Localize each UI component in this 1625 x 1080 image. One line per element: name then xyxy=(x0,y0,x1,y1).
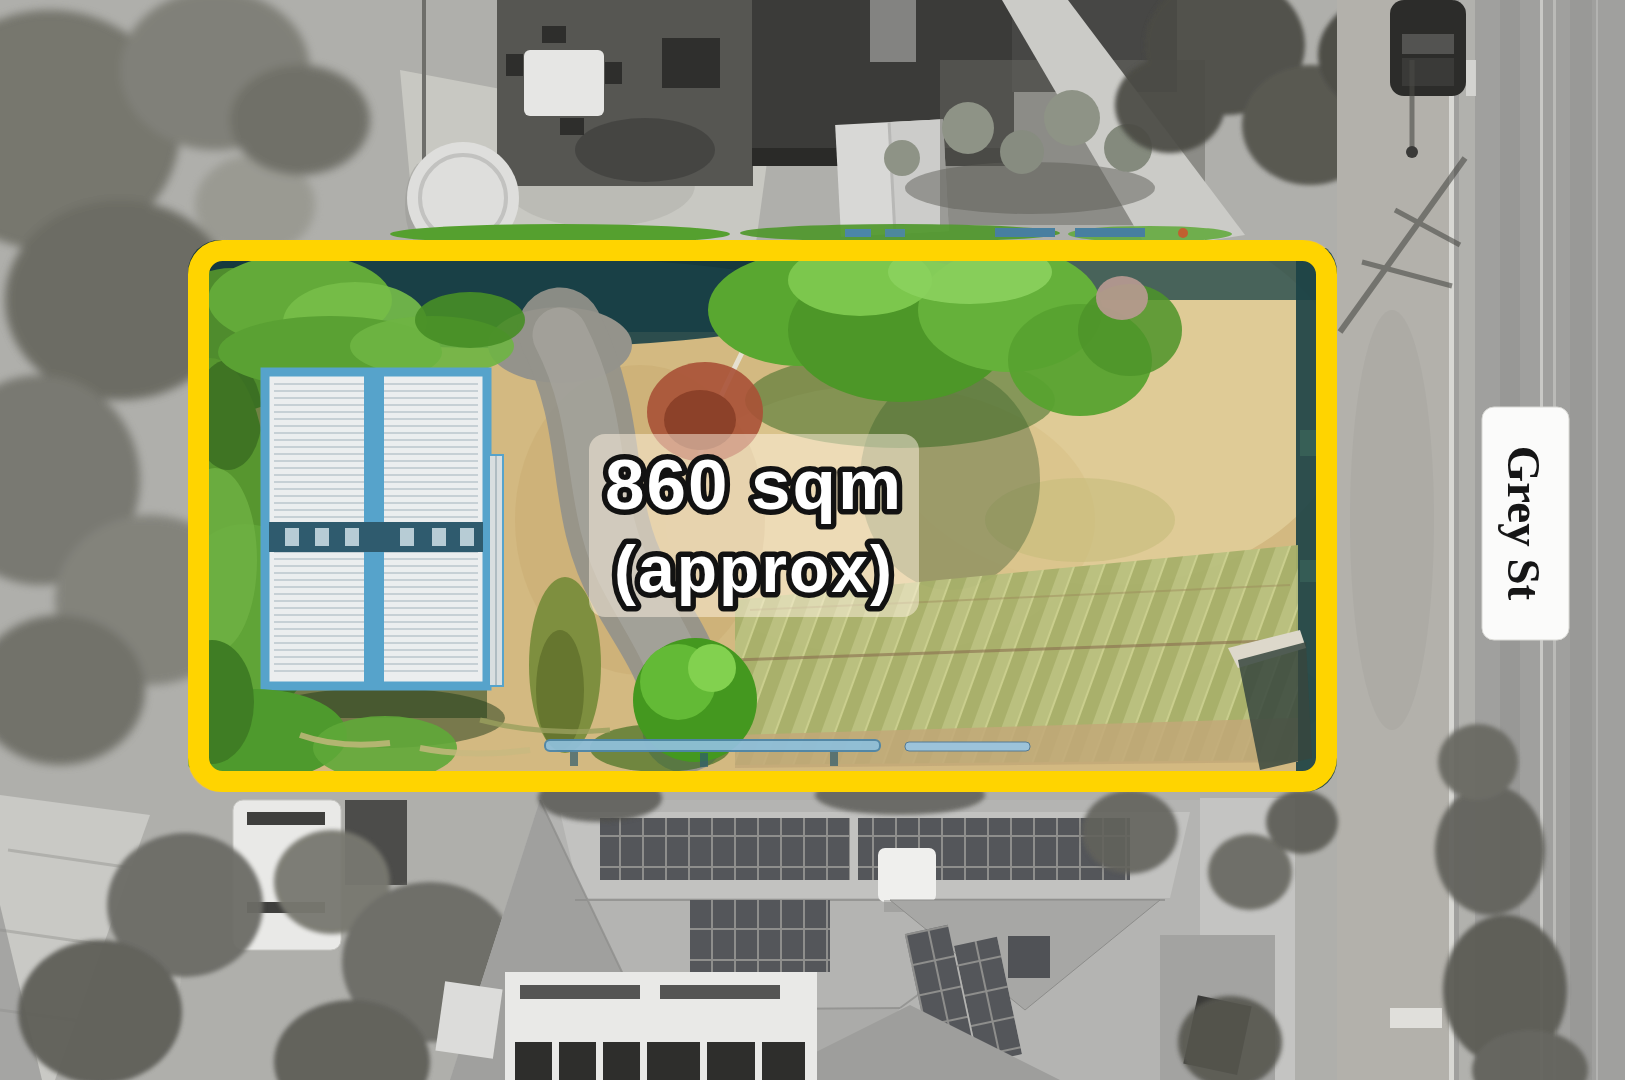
solar-array xyxy=(690,900,830,972)
bbq-top xyxy=(662,38,720,88)
sunroom xyxy=(505,972,817,1080)
path-marking xyxy=(1390,1008,1442,1028)
bottom-house xyxy=(435,774,1338,1080)
shed-awning xyxy=(489,455,503,686)
bench xyxy=(905,742,1030,751)
area-overlay: 860 sqm (approx) xyxy=(589,434,919,617)
street-sign-label: Grey St xyxy=(1498,446,1550,601)
power-pole xyxy=(1406,146,1418,158)
aerial-property-photo: 860 sqm (approx) Grey St xyxy=(0,0,1625,1080)
stairs xyxy=(870,0,916,62)
area-label: 860 sqm xyxy=(605,445,903,524)
pink-shrub xyxy=(1096,276,1148,320)
area-approx-label: (approx) xyxy=(614,532,894,606)
road-edge-line xyxy=(1449,0,1454,1080)
roof-window xyxy=(1008,936,1050,978)
street-sign: Grey St xyxy=(1482,407,1569,640)
outdoor-table xyxy=(524,50,604,116)
roof-unit xyxy=(878,848,936,902)
neighbor-deck xyxy=(497,0,753,186)
solar-array xyxy=(600,818,850,880)
parked-car xyxy=(1390,0,1466,96)
grey-st-road xyxy=(1337,0,1625,1080)
shed-building xyxy=(255,372,505,748)
roof-midband xyxy=(269,522,483,552)
